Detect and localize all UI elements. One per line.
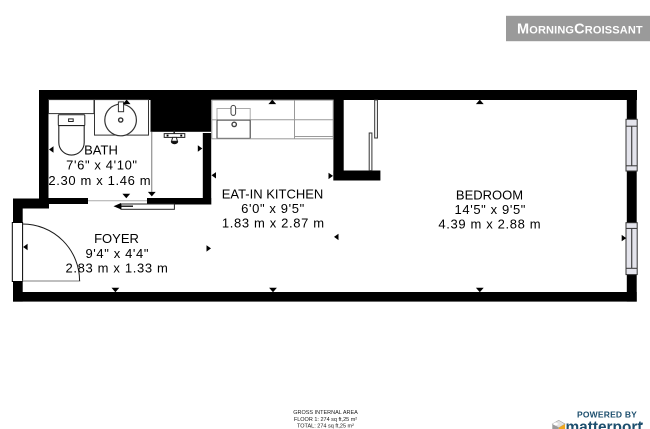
svg-text:EAT-IN KITCHEN: EAT-IN KITCHEN [222, 186, 324, 201]
svg-text:1.83 m x 2.87 m: 1.83 m x 2.87 m [222, 216, 325, 231]
svg-text:7'6" x 4'10": 7'6" x 4'10" [66, 157, 138, 172]
svg-text:4.39 m x 2.88 m: 4.39 m x 2.88 m [438, 217, 541, 232]
svg-text:9'4" x 4'4": 9'4" x 4'4" [85, 246, 149, 261]
svg-text:14'5" x 9'5": 14'5" x 9'5" [455, 202, 527, 217]
svg-text:MORNINGCROISSANT: MORNINGCROISSANT [517, 22, 643, 38]
svg-text:GROSS INTERNAL AREA: GROSS INTERNAL AREA [293, 410, 358, 416]
svg-text:FOYER: FOYER [94, 231, 139, 246]
svg-text:POWERED BY: POWERED BY [577, 410, 637, 420]
svg-text:matterport: matterport [566, 419, 643, 429]
svg-text:2.30 m x 1.46 m: 2.30 m x 1.46 m [48, 173, 151, 188]
svg-text:FLOOR 1: 274 sq ft,25 m²: FLOOR 1: 274 sq ft,25 m² [294, 417, 357, 423]
svg-text:6'0" x 9'5": 6'0" x 9'5" [241, 201, 305, 216]
svg-text:2.83 m x 1.33 m: 2.83 m x 1.33 m [66, 261, 169, 276]
svg-text:BATH: BATH [84, 143, 118, 158]
svg-text:BEDROOM: BEDROOM [456, 187, 523, 202]
svg-text:TOTAL: 274 sq ft,25 m²: TOTAL: 274 sq ft,25 m² [297, 424, 354, 429]
